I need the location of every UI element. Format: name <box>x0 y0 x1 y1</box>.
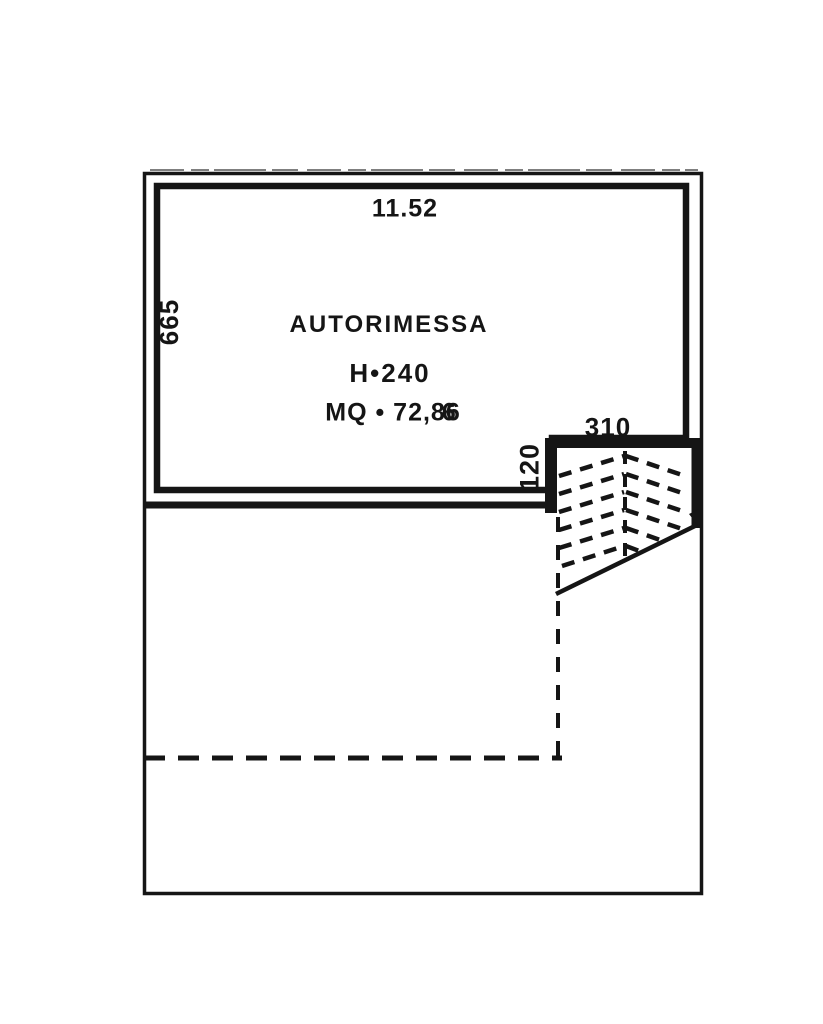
room-area-overstruck-digit: 6 <box>446 399 461 427</box>
room-height-label: H•240 <box>349 360 430 386</box>
room-area-label: MQ • 72,86 <box>325 401 460 426</box>
room-name-label: AUTORIMESSA <box>290 313 489 337</box>
ramp-hatch-left <box>559 456 624 566</box>
ramp-slope-edge <box>556 524 699 594</box>
dimension-ramp-width: 310 <box>585 414 631 440</box>
parcel-boundary <box>145 174 702 894</box>
dimension-top-width: 11.52 <box>372 197 438 222</box>
scanned-floor-plan-page: 11.52 665 AUTORIMESSA H•240 MQ • 72,86 3… <box>0 0 823 1024</box>
dimension-left-height: 665 <box>156 299 182 345</box>
floor-plan-drawing <box>0 0 823 1024</box>
dimension-ramp-depth: 120 <box>517 443 544 491</box>
room-area-text: MQ • 72,8 <box>325 399 446 427</box>
ramp-hatch-right <box>626 456 688 552</box>
